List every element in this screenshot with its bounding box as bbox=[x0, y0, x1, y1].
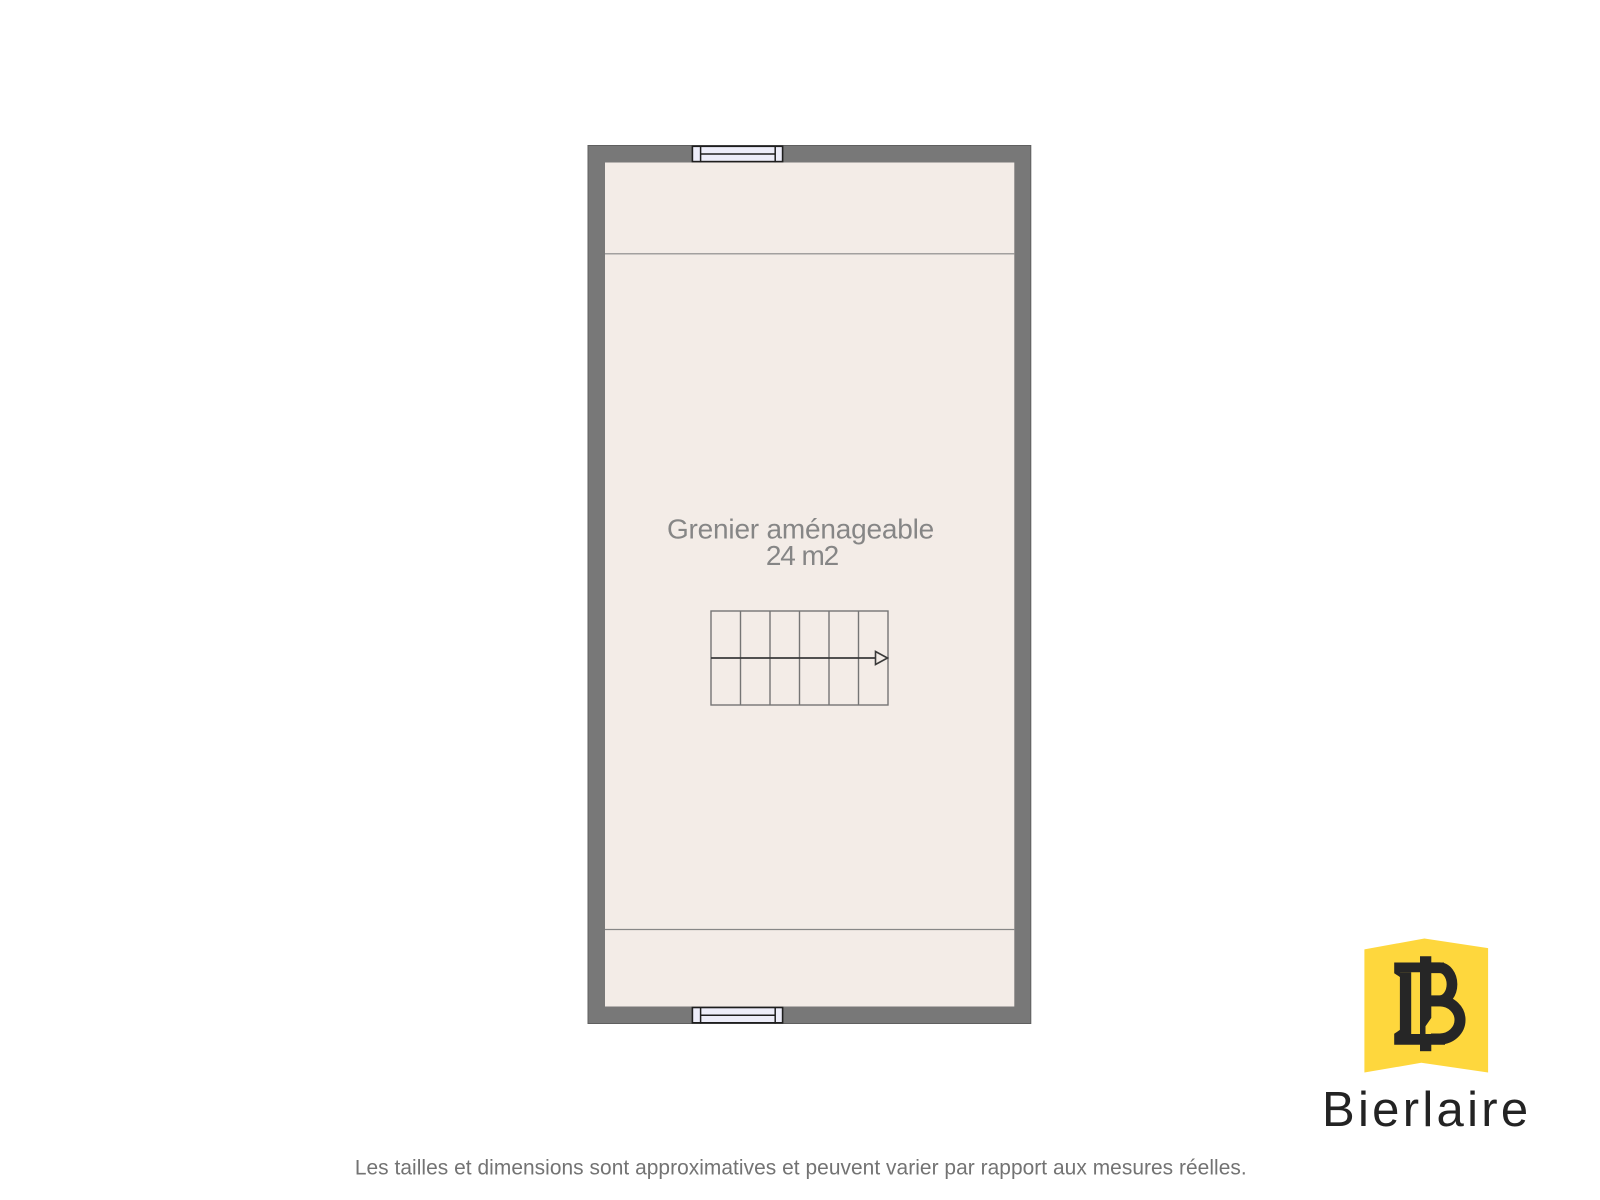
svg-text:Les tailles et dimensions sont: Les tailles et dimensions sont approxima… bbox=[355, 1156, 1247, 1179]
svg-text:24 m2: 24 m2 bbox=[766, 540, 839, 571]
svg-text:Bierlaire: Bierlaire bbox=[1322, 1083, 1531, 1137]
